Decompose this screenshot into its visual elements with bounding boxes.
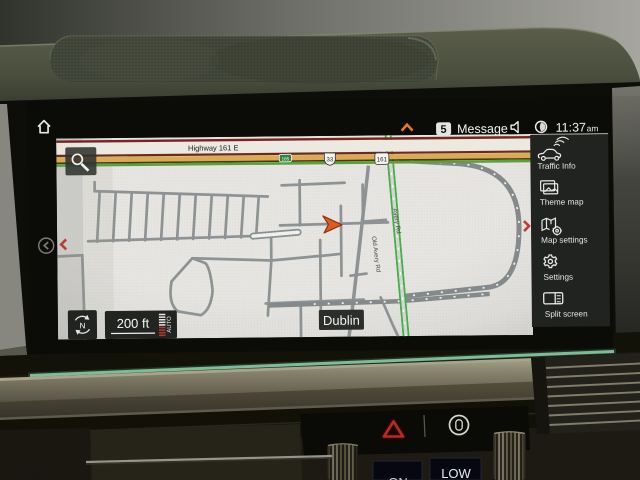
svg-text:Highway 161 E: Highway 161 E — [188, 143, 239, 152]
svg-text:AUTO: AUTO — [167, 316, 173, 333]
svg-text:Theme map: Theme map — [540, 197, 584, 206]
svg-text:Dublin: Dublin — [323, 313, 360, 328]
svg-text:165: 165 — [282, 156, 290, 161]
svg-text:Traffic Info: Traffic Info — [537, 162, 576, 171]
svg-text:Settings: Settings — [543, 273, 573, 282]
svg-text:Map settings: Map settings — [541, 235, 588, 244]
svg-text:N: N — [80, 321, 86, 330]
svg-text:LOW: LOW — [441, 466, 471, 480]
svg-text:200 ft: 200 ft — [117, 316, 150, 331]
svg-text:161: 161 — [377, 156, 388, 163]
svg-text:Split screen: Split screen — [545, 309, 588, 318]
svg-text:am: am — [587, 123, 599, 133]
svg-text:ON: ON — [388, 475, 408, 480]
svg-text:33: 33 — [327, 157, 334, 163]
svg-text:11:37: 11:37 — [556, 120, 587, 134]
